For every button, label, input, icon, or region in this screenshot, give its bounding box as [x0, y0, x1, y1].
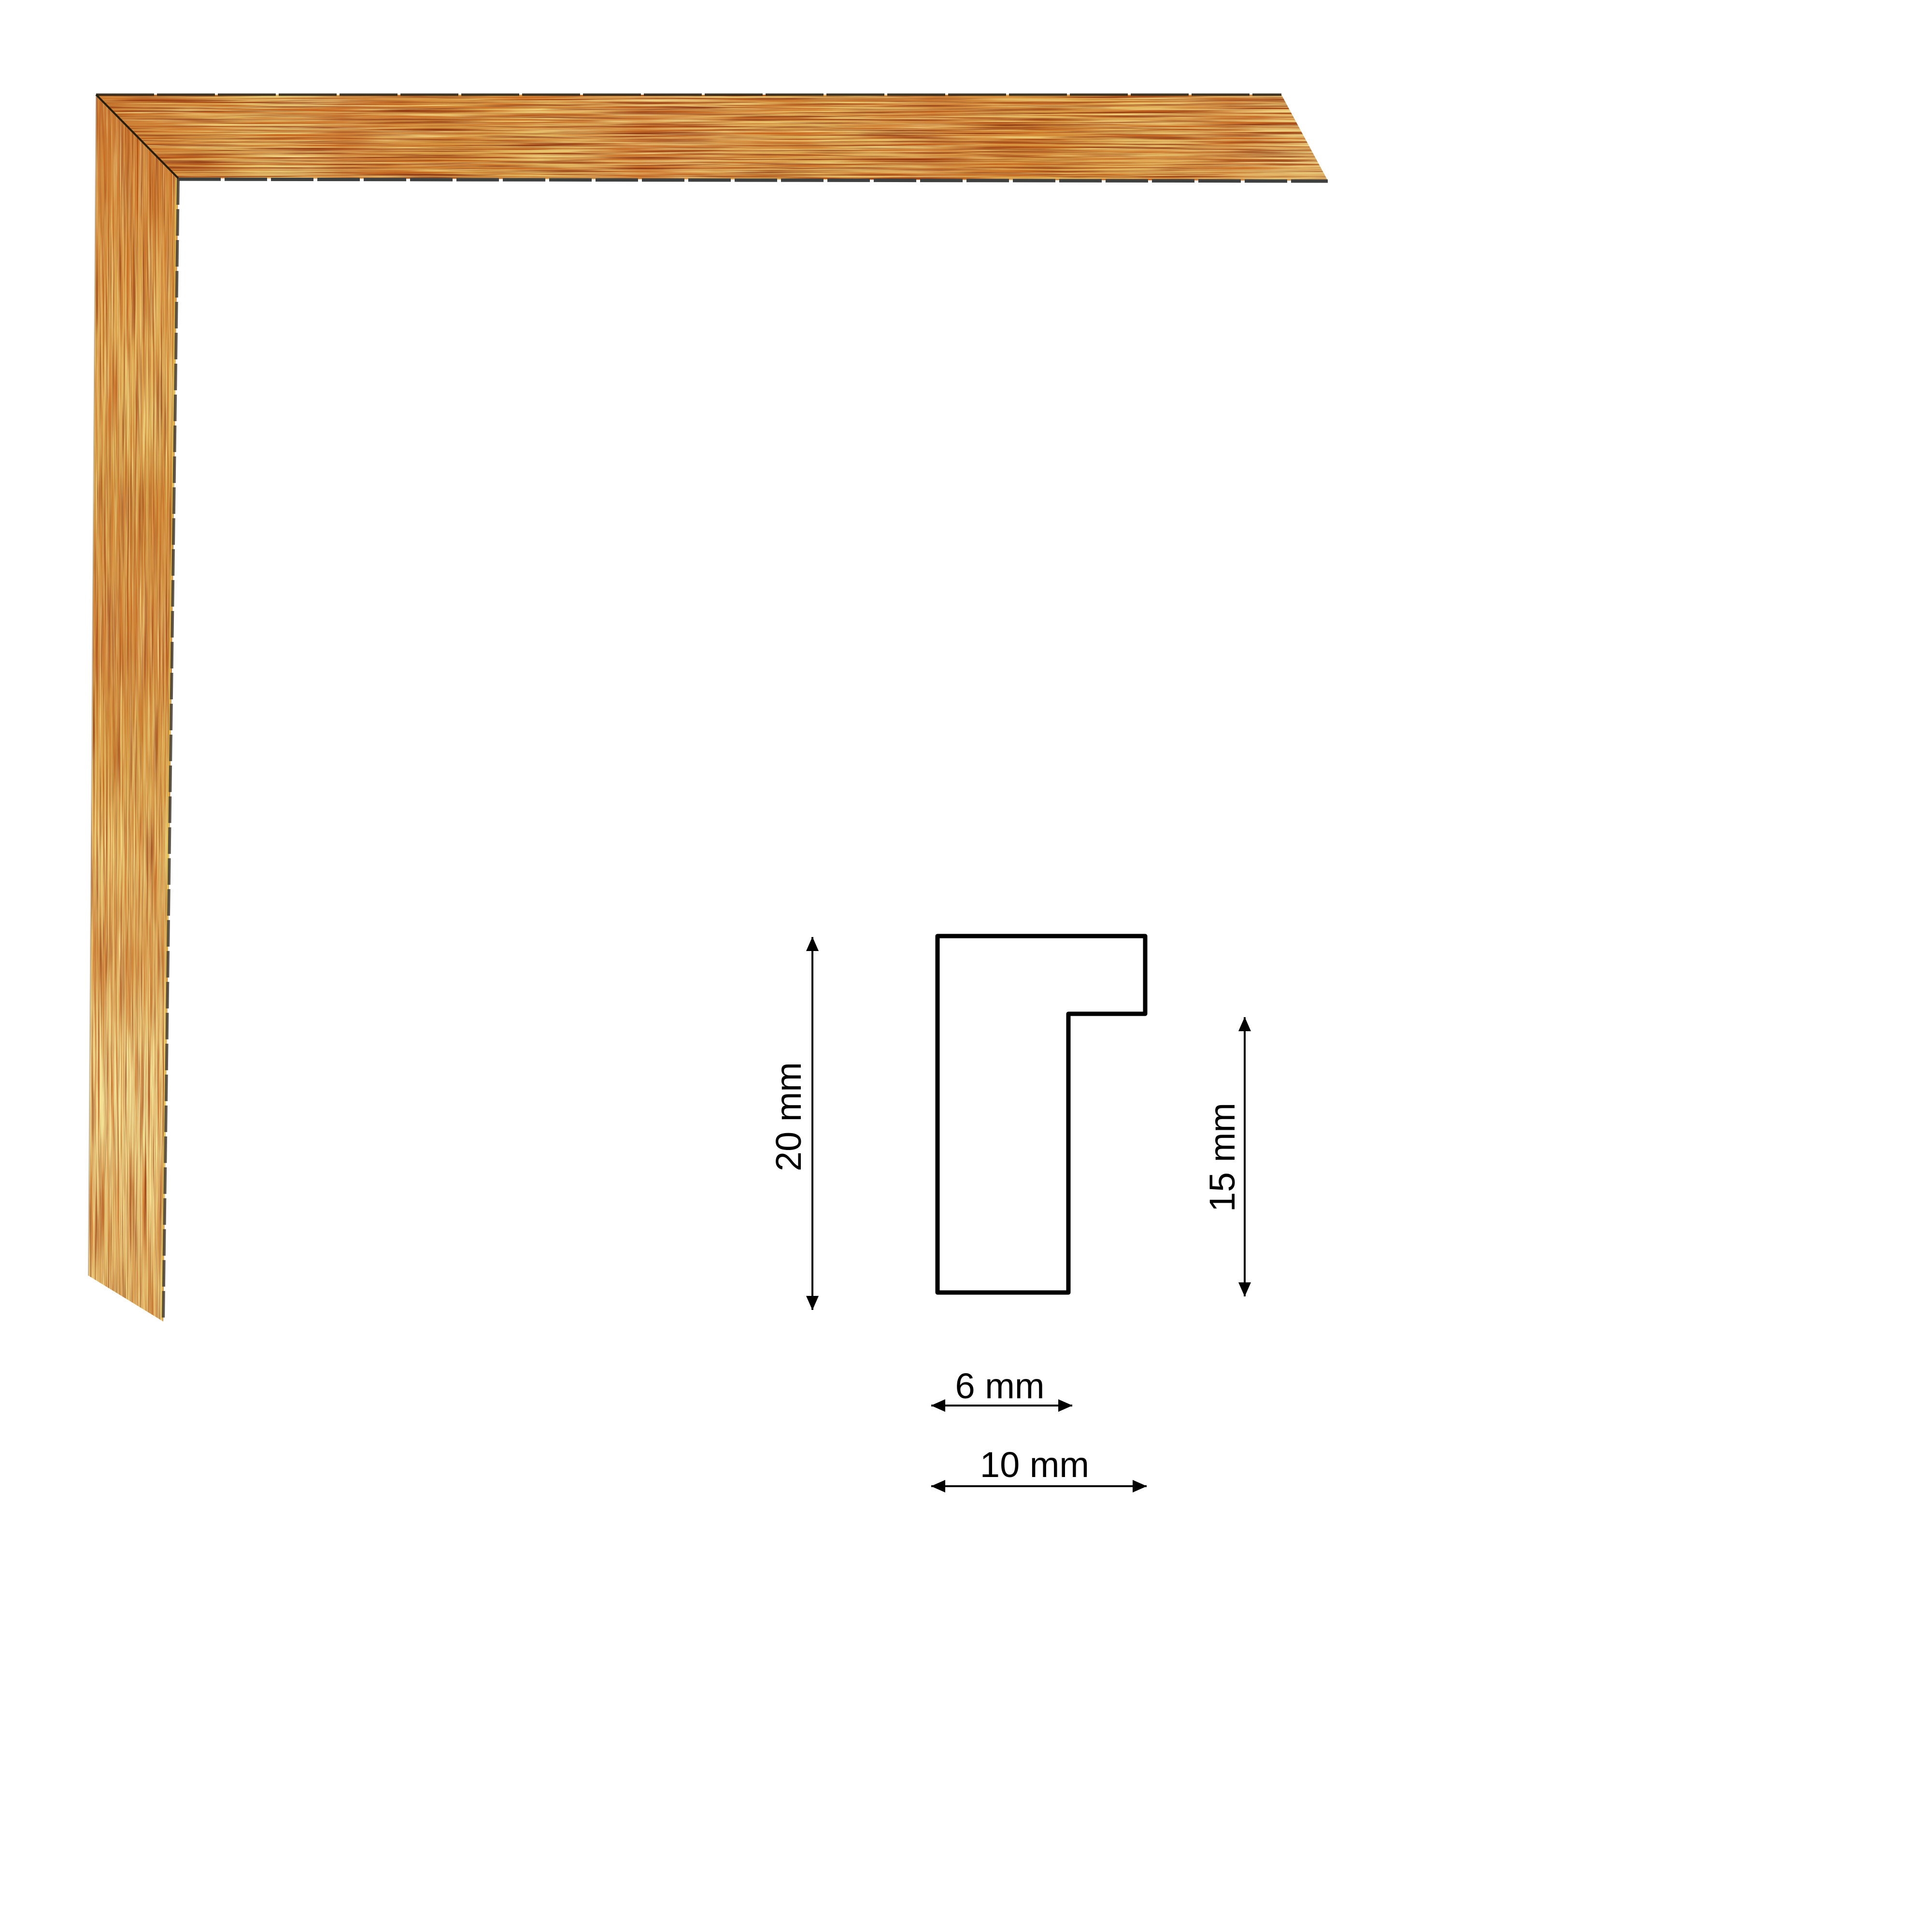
frame-corner-sample	[88, 95, 1328, 1321]
dimension-rabbet-height: 15 mm	[1202, 1017, 1245, 1296]
dimension-face-width: 6 mm	[931, 1366, 1072, 1406]
cross-section-diagram: 20 mm 15 mm 6 mm 10 mm	[768, 936, 1245, 1486]
frame-rail-horizontal	[96, 95, 1328, 181]
dimension-total-height: 20 mm	[768, 937, 812, 1310]
scene: 20 mm 15 mm 6 mm 10 mm	[0, 0, 1932, 1932]
dimension-label-total-width: 10 mm	[980, 1445, 1089, 1485]
frame-rail-vertical	[88, 95, 178, 1321]
rail-horizontal-bottom-shadow	[178, 179, 1328, 181]
profile-outline	[938, 936, 1145, 1293]
dimension-label-face-width: 6 mm	[955, 1366, 1045, 1406]
dimension-total-width: 10 mm	[931, 1445, 1147, 1486]
dimension-label-total-height: 20 mm	[768, 1062, 809, 1171]
rail-horizontal-grain	[96, 95, 1328, 181]
dimension-label-rabbet-height: 15 mm	[1202, 1103, 1242, 1212]
